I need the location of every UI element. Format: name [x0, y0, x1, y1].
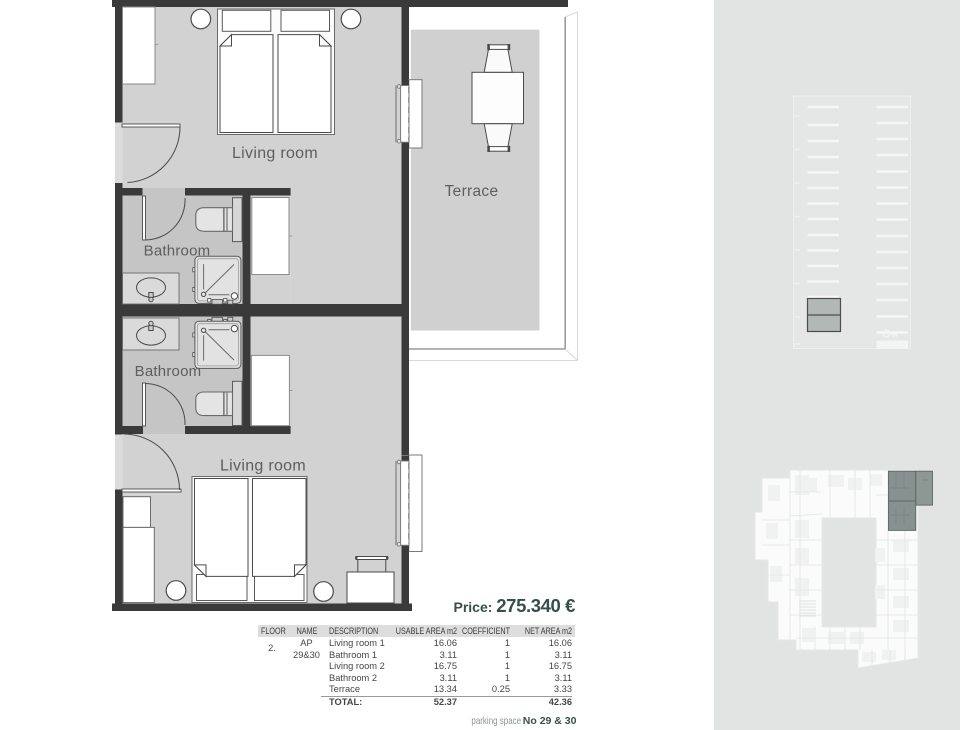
svg-text:Bathroom: Bathroom	[144, 243, 211, 260]
svg-text:Living room: Living room	[232, 145, 318, 162]
svg-text:Terrace: Terrace	[445, 183, 499, 200]
svg-text:Living room: Living room	[220, 458, 306, 475]
svg-text:Bathroom: Bathroom	[135, 363, 202, 380]
